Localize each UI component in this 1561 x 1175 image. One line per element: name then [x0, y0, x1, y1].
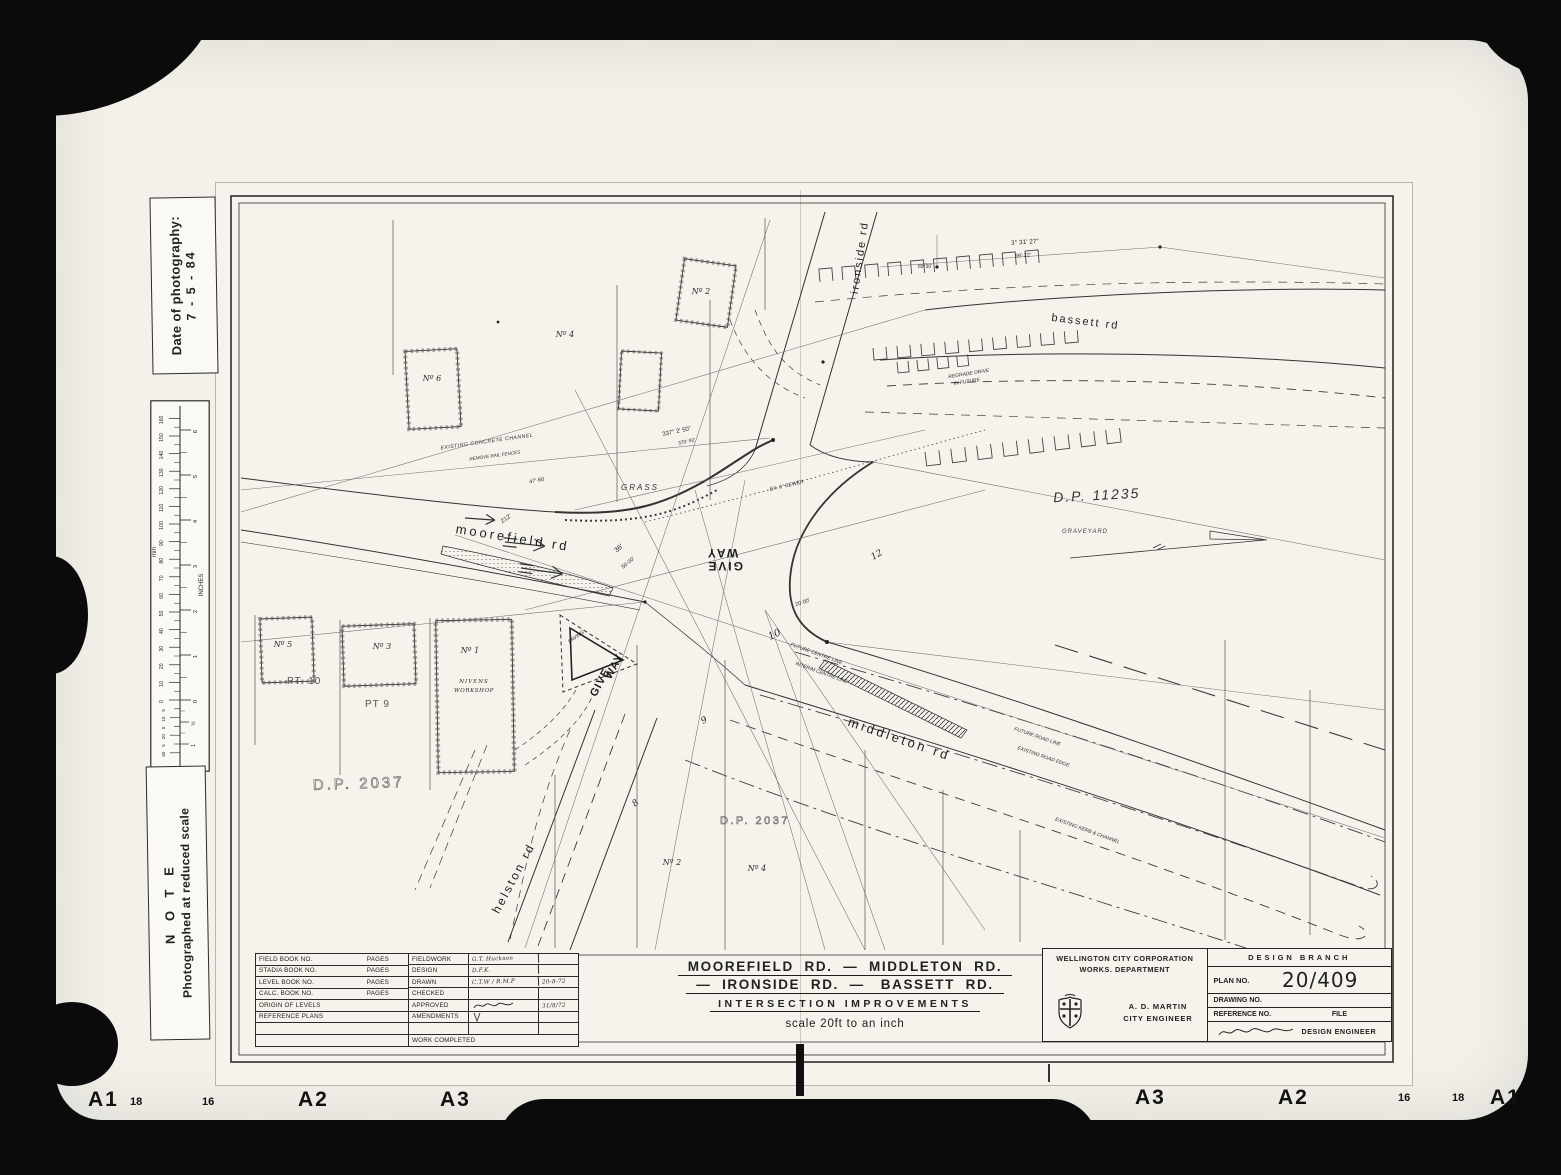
film-marker: 16 — [1398, 1092, 1410, 1104]
intersection-plan-map: moorefield rd middleton rd helston rd ir… — [225, 190, 1400, 1070]
design-branch-label: DESIGN BRANCH — [1208, 949, 1391, 967]
title-line3: INTERSECTION IMPROVEMENTS — [710, 998, 980, 1012]
svg-text:5: 5 — [161, 744, 166, 747]
svg-text:130: 130 — [159, 468, 165, 477]
table-row: ORIGIN OF LEVELS — [256, 1000, 408, 1012]
film-smudge — [26, 1002, 118, 1086]
table-row: DESIGN D.F.K. — [409, 965, 578, 976]
svg-text:40: 40 — [159, 628, 165, 634]
lot-10: 10 — [767, 627, 784, 643]
svg-text:1: 1 — [191, 744, 197, 747]
svg-text:0: 0 — [159, 700, 165, 703]
dim-50: 50·00' — [621, 556, 636, 570]
registration-mark — [796, 1044, 804, 1096]
title-line1: MOOREFIELD RD. — MIDDLETON RD. — [678, 959, 1012, 976]
svg-text:50: 50 — [159, 611, 165, 617]
plan-no-label: PLAN NO. — [1214, 976, 1250, 985]
city-engineer-title: CITY ENGINEER — [1123, 1013, 1192, 1025]
dp2037-left-label: D.P. 2037 — [313, 774, 405, 794]
film-marker: A1 — [88, 1088, 119, 1112]
building-no5 — [260, 617, 314, 683]
film-marker: A3 — [440, 1088, 471, 1112]
agency-org-line2: WORKS. DEPARTMENT — [1043, 965, 1207, 976]
table-row-empty — [256, 1023, 408, 1035]
svg-text:110: 110 — [159, 504, 165, 512]
table-row: REFERENCE PLANS — [256, 1012, 408, 1024]
lot-pt10: PT. 10 — [287, 676, 321, 687]
dim-angle-337: 337° 2' 50" — [662, 426, 692, 438]
table-row: FIELDWORK G.T. Huckson — [409, 954, 578, 965]
note-sewer: EX. 6" SEWER — [769, 479, 805, 493]
scanned-plan-photograph: moorefield rd middleton rd helston rd ir… — [0, 0, 1561, 1175]
approved-signature — [469, 1000, 539, 1011]
note-box: N O T E Photographed at reduced scale — [146, 765, 211, 1040]
svg-text:100: 100 — [159, 521, 165, 530]
film-smudge — [14, 556, 88, 674]
svg-text:5: 5 — [161, 709, 166, 712]
svg-text:160: 160 — [159, 415, 165, 424]
agency-right-pane: DESIGN BRANCH PLAN NO. 20/409 DRAWING NO… — [1208, 949, 1391, 1041]
dim-20: 20·00' — [795, 598, 811, 608]
svg-text:120: 120 — [159, 486, 165, 495]
agency-org-line1: WELLINGTON CITY CORPORATION — [1043, 954, 1207, 965]
table-row: AMENDMENTS — [409, 1012, 578, 1023]
lot-boundaries — [255, 218, 1310, 950]
svg-text:6: 6 — [193, 430, 199, 433]
svg-text:60: 60 — [159, 593, 165, 599]
film-marker: 16 — [202, 1096, 214, 1108]
reference-no-row: REFERENCE NO. FILE — [1208, 1008, 1391, 1022]
lot-no4-bot: Nº 4 — [747, 864, 766, 873]
svg-text:0: 0 — [193, 700, 199, 703]
svg-text:20: 20 — [159, 663, 165, 669]
lot-12: 12 — [870, 548, 885, 563]
svg-text:3: 3 — [193, 565, 199, 568]
note-remove-fences: REMOVE RAIL FENCES — [469, 449, 521, 461]
nivens-workshop-label: NIVENS — [458, 679, 489, 685]
dim-angle-junction: 89°30' — [918, 264, 932, 270]
middleton-median-island — [819, 660, 967, 738]
nivens-workshop-label2: WORKSHOP — [454, 688, 494, 694]
lot-no4-top: Nº 4 — [555, 330, 574, 339]
buildings — [260, 259, 736, 773]
note-existing-kerb: EXISTING KERB & CHANNEL — [1054, 817, 1120, 846]
lot-no2-bot: Nº 2 — [662, 858, 681, 867]
lot-8: 8 — [631, 798, 642, 810]
date-of-photography-box: Date of photography: 7 - 5 - 84 — [149, 196, 218, 374]
amendments-mark — [469, 1012, 539, 1022]
svg-text:80: 80 — [159, 558, 165, 564]
design-engineer-signature — [1216, 1024, 1296, 1040]
svg-text:30: 30 — [161, 751, 166, 757]
agency-title-block: WELLINGTON CITY CORPORATION WORKS. DEPAR… — [1042, 948, 1392, 1042]
table-row: CHECKED — [409, 988, 578, 999]
table-row: STADIA BOOK NO. PAGES — [256, 966, 408, 978]
road-label-helston: helston rd — [489, 841, 538, 916]
svg-text:150: 150 — [159, 433, 165, 442]
svg-text:INCHES: INCHES — [199, 574, 205, 597]
registration-tick — [1048, 1064, 1050, 1082]
lot-no5: Nº 5 — [273, 640, 292, 649]
plan-no-row: PLAN NO. 20/409 — [1208, 967, 1391, 994]
svg-text:mm: mm — [152, 547, 158, 557]
survey-lines — [241, 220, 1385, 950]
ruler-svg: 0102030405060708090100110120130140150160… — [150, 400, 210, 772]
graveyard-arrow-shaft — [1070, 540, 1265, 558]
dashed-lines — [415, 282, 1385, 985]
svg-text:70: 70 — [159, 575, 165, 581]
dp11235-label: D.P. 11235 — [1053, 485, 1141, 506]
svg-text:10: 10 — [159, 681, 165, 687]
scale-ruler: 0102030405060708090100110120130140150160… — [150, 400, 210, 772]
svg-text:2: 2 — [193, 610, 199, 613]
table-row: CALC. BOOK NO. PAGES — [256, 989, 408, 1001]
film-marker: A2 — [298, 1088, 329, 1112]
road-label-bassett: bassett rd — [1051, 312, 1120, 332]
file-label: FILE — [1332, 1011, 1347, 1018]
film-marker: 18 — [1452, 1092, 1464, 1104]
dp2037-mid-label: D.P. 2037 — [720, 815, 790, 827]
graveyard-label: GRAVEYARD — [1062, 529, 1108, 535]
agency-left-pane: WELLINGTON CITY CORPORATION WORKS. DEPAR… — [1043, 949, 1208, 1041]
sheet-frame — [231, 196, 1393, 1062]
road-label-moorefield: moorefield rd — [455, 521, 571, 554]
film-edge — [498, 1099, 1098, 1175]
building-small — [619, 351, 662, 411]
plan-no-value: 20/409 — [1249, 968, 1391, 992]
road-lines — [241, 212, 1385, 950]
lot-9: 9 — [700, 715, 710, 727]
coat-of-arms-icon — [1055, 994, 1085, 1035]
film-marker: 18 — [130, 1096, 142, 1108]
survey-info-table: FIELD BOOK NO. PAGES STADIA BOOK NO. PAG… — [255, 953, 579, 1047]
svg-text:5: 5 — [193, 475, 199, 478]
title-line2: — IRONSIDE RD. — BASSETT RD. — [686, 977, 1003, 994]
lot-no2-top: Nº 2 — [691, 287, 710, 296]
dim-212: 212' — [500, 514, 513, 525]
reference-no-label: REFERENCE NO. — [1214, 1011, 1272, 1018]
table-row: DRAWN C.T.W / R.M.P 20-8-72 — [409, 977, 578, 988]
film-marker: A1 — [1490, 1086, 1521, 1110]
date-of-photography-label: Date of photography: — [167, 216, 186, 356]
parking-ticks-lower — [925, 428, 1121, 466]
city-engineer-name: A. D. MARTIN — [1123, 1001, 1192, 1013]
date-of-photography-value: 7 - 5 - 84 — [184, 250, 201, 320]
note-existing-edge: EXISTING ROAD EDGE — [1016, 745, 1070, 769]
table-row: FIELD BOOK NO. PAGES — [256, 954, 408, 966]
lot-no1: Nº 1 — [460, 646, 479, 655]
traffic-islands — [441, 546, 967, 738]
book-numbers-column: FIELD BOOK NO. PAGES STADIA BOOK NO. PAG… — [256, 954, 409, 1046]
give-way-marking-flipped: GIVE WAY — [701, 546, 743, 573]
svg-text:90: 90 — [159, 540, 165, 546]
building-no3 — [342, 624, 416, 686]
work-completed-row: WORK COMPLETED — [409, 1035, 578, 1046]
dim-47: 47'·60 — [529, 477, 545, 486]
road-markings: GIVE WAY WAY GIVE PAVING — [567, 546, 743, 699]
design-engineer-row: DESIGN ENGINEER — [1208, 1022, 1391, 1041]
dim-36: 36' — [613, 543, 624, 554]
note-title: N O T E — [162, 862, 180, 944]
flow-arrows — [465, 513, 1267, 580]
lot-no6: Nº 6 — [422, 374, 441, 383]
road-label-ironside: ironside rd — [849, 220, 871, 294]
dim-dist-top: 99'·22' — [1015, 252, 1032, 259]
area-labels: D.P. 11235 GRAVEYARD GRASS D.P. 2037 D.P… — [313, 483, 1141, 827]
signoff-column: FIELDWORK G.T. Huckson DESIGN D.F.K. DRA… — [409, 954, 578, 1046]
drawing-no-row: DRAWING NO. — [1208, 994, 1391, 1008]
film-marker: A2 — [1278, 1086, 1309, 1110]
moorefield-median-island — [441, 546, 613, 596]
svg-text:140: 140 — [159, 451, 165, 460]
table-row: LEVEL BOOK NO. PAGES — [256, 977, 408, 989]
drawing-title-block: MOOREFIELD RD. — MIDDLETON RD. — IRONSID… — [630, 958, 1060, 1042]
table-row: APPROVED 31/8/72 — [409, 1000, 578, 1012]
table-row-empty — [409, 1023, 578, 1034]
svg-text:30: 30 — [159, 646, 165, 652]
note-future-road: FUTURE ROAD LINE — [1013, 726, 1062, 748]
svg-text:1: 1 — [193, 655, 199, 658]
note-text: Photographed at reduced scale — [177, 808, 195, 999]
svg-text:20: 20 — [161, 734, 166, 740]
building-no1-nivens-workshop — [436, 619, 515, 772]
film-marker: A3 — [1135, 1086, 1166, 1110]
lot-no3: Nº 3 — [372, 642, 391, 651]
design-engineer-label: DESIGN ENGINEER — [1302, 1027, 1377, 1036]
svg-text:5: 5 — [161, 726, 166, 729]
dim-angle-top: 3° 31' 27" — [1011, 237, 1040, 247]
title-scale: scale 20ft to an inch — [630, 1018, 1060, 1030]
svg-text:10: 10 — [161, 716, 166, 722]
table-row-empty — [256, 1035, 408, 1047]
grass-label: GRASS — [621, 483, 659, 492]
lot-pt9: PT 9 — [365, 699, 390, 710]
building-no6 — [405, 349, 461, 430]
